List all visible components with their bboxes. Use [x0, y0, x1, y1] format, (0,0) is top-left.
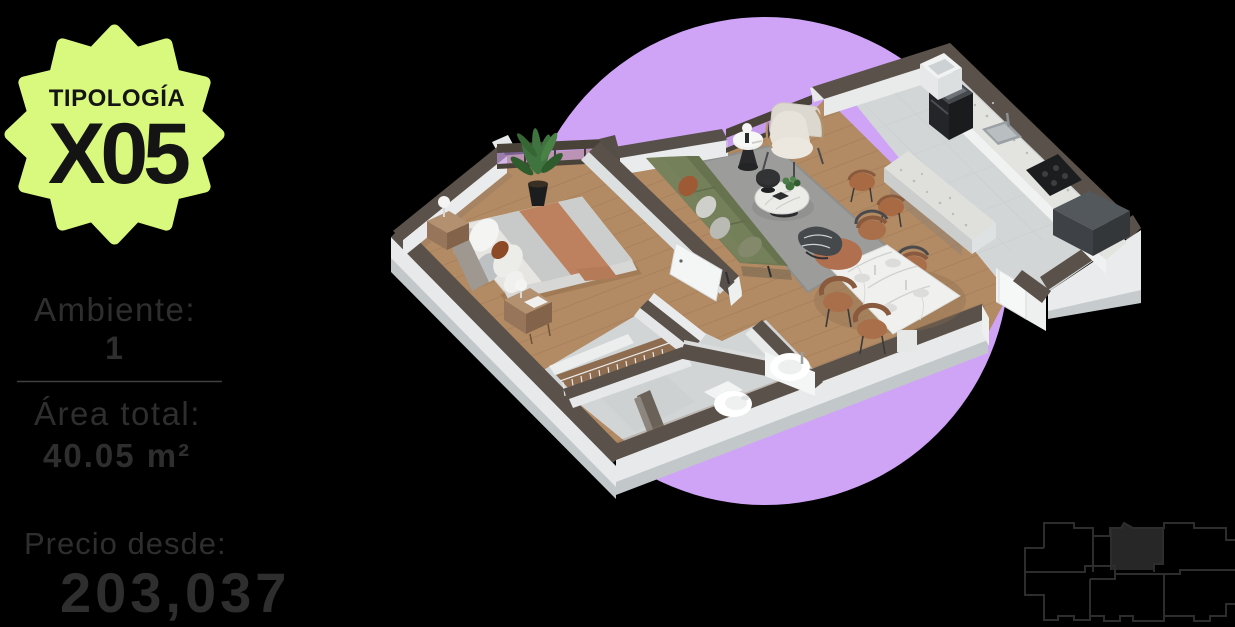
svg-text:1: 1 — [105, 330, 123, 366]
svg-text:Ambiente:: Ambiente: — [34, 291, 196, 328]
svg-text:X05: X05 — [48, 106, 189, 202]
svg-text:40.05 m²: 40.05 m² — [43, 437, 191, 474]
svg-text:Precio desde:: Precio desde: — [24, 526, 227, 561]
svg-text:203,037: 203,037 — [60, 561, 290, 624]
svg-text:Área total:: Área total: — [34, 395, 201, 432]
